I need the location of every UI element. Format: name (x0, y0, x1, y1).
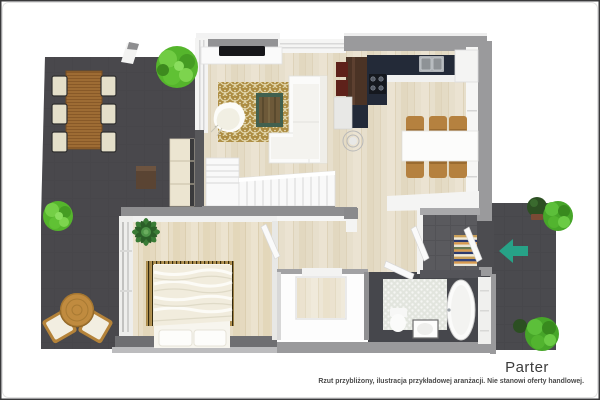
svg-text:Rzut przybliżony, ilustracja p: Rzut przybliżony, ilustracja przykładowe… (318, 378, 584, 385)
svg-text:Parter: Parter (505, 359, 549, 376)
